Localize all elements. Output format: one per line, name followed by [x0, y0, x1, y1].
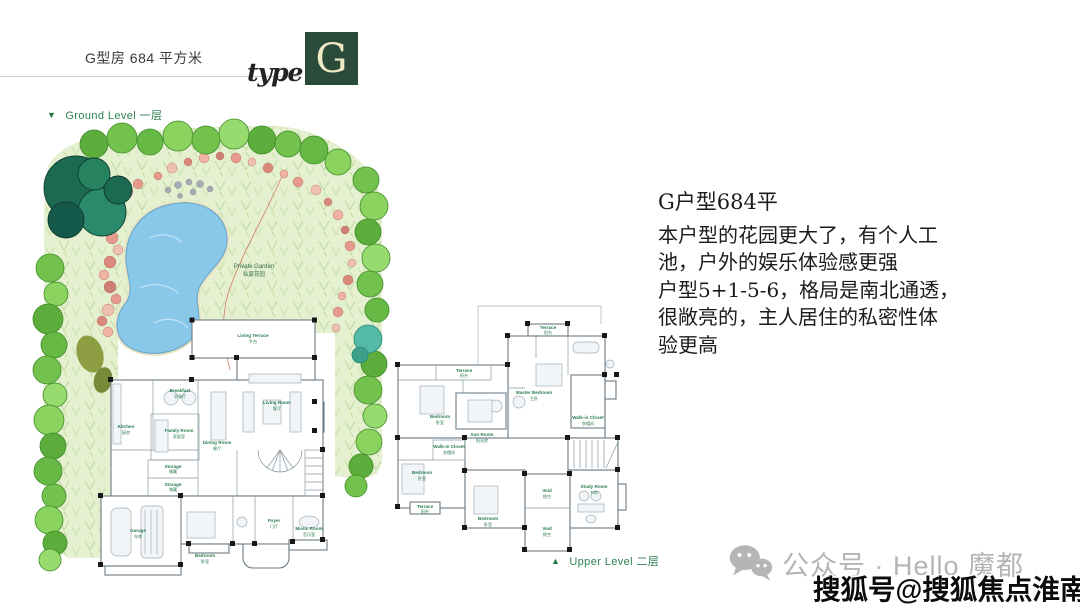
room-label: Bedroom: [195, 553, 215, 558]
svg-text:卧室: 卧室: [436, 419, 444, 425]
svg-text:家庭室: 家庭室: [173, 433, 185, 439]
page-title: G型房 684 平方米: [85, 48, 203, 68]
watermark-text: 搜狐号@搜狐焦点淮南站: [813, 567, 1080, 607]
svg-text:阳光房: 阳光房: [476, 437, 488, 443]
svg-text:挑空: 挑空: [543, 493, 551, 499]
room-label: Bedroom: [430, 414, 450, 419]
svg-text:阳台: 阳台: [421, 508, 429, 514]
room-label: Walk-in Closet: [433, 444, 465, 449]
description-line: 验更高: [658, 332, 1062, 359]
svg-text:书房: 书房: [590, 489, 598, 495]
svg-text:主卧: 主卧: [530, 395, 538, 401]
svg-text:储藏: 储藏: [169, 486, 177, 492]
description-block: G户型684平 本户型的花园更大了，有个人工 池，户外的娱乐体验感更强 户型5+…: [658, 186, 1062, 359]
room-label: Master Bedroom: [516, 390, 552, 395]
svg-text:门厅: 门厅: [270, 523, 278, 529]
room-label: Sun Room: [471, 432, 494, 437]
room-label: Study Room: [580, 484, 607, 489]
description-line: 很敞亮的，主人居住的私密性体: [658, 304, 1062, 331]
room-label: Bedroom: [412, 470, 432, 475]
room-label: Living Terrace: [237, 333, 269, 338]
room-label: Void: [542, 526, 552, 531]
description-line: 池，户外的娱乐体验感更强: [658, 249, 1062, 276]
upper-level-text: Upper Level 二层: [569, 553, 659, 569]
description-title: G户型684平: [658, 186, 1062, 216]
svg-text:卧室: 卧室: [484, 521, 492, 527]
wechat-icon: [728, 543, 774, 583]
type-word: type: [247, 58, 302, 87]
type-g-logo: G: [305, 32, 358, 85]
svg-text:客厅: 客厅: [273, 405, 281, 411]
svg-text:早餐厅: 早餐厅: [174, 393, 186, 399]
floor-plan-ground: Living Terrace 平台 Breakfast 早餐厅 Kitchen …: [93, 310, 351, 578]
upper-level-label: ▲ Upper Level 二层: [551, 553, 659, 569]
room-label: Walk-in Closet: [572, 415, 604, 420]
svg-text:卧室: 卧室: [201, 558, 209, 564]
svg-text:音乐室: 音乐室: [303, 531, 315, 537]
type-g-letter: G: [316, 39, 348, 79]
svg-text:阳台: 阳台: [460, 372, 468, 378]
svg-text:卧室: 卧室: [418, 475, 426, 481]
room-label: Breakfast: [170, 388, 191, 393]
svg-text:阳台: 阳台: [544, 329, 552, 335]
up-triangle-icon: ▲: [551, 557, 560, 566]
svg-text:挑空: 挑空: [543, 531, 551, 537]
svg-text:餐厅: 餐厅: [213, 445, 221, 451]
svg-text:车库: 车库: [134, 533, 142, 539]
room-label: Void: [542, 488, 552, 493]
room-label: Foyer: [268, 518, 281, 523]
description-line: 户型5+1-5-6，格局是南北通透，: [658, 277, 1062, 304]
description-line: 本户型的花园更大了，有个人工: [658, 222, 1062, 249]
room-label: Living Room: [263, 400, 291, 405]
garden-label-en: Private Garden: [234, 264, 274, 270]
svg-text:平台: 平台: [249, 338, 257, 344]
svg-text:厨房: 厨房: [122, 429, 130, 435]
garden-label-zh: 私家花园: [243, 270, 266, 278]
svg-text:衣帽间: 衣帽间: [443, 449, 455, 455]
room-label: Bedroom: [478, 516, 498, 521]
room-label: Family Room: [165, 428, 194, 433]
svg-text:衣帽间: 衣帽间: [582, 420, 594, 426]
page: G型房 684 平方米 type G ▼ Ground Level 一层: [0, 0, 1080, 608]
room-label: Kitchen: [118, 424, 135, 429]
room-label: Dining Room: [203, 440, 232, 445]
room-label: Music Room: [295, 526, 322, 531]
svg-text:储藏: 储藏: [169, 468, 177, 474]
room-label: Garage: [130, 528, 146, 533]
floor-plan-upper: Terrace 阳台 Master Bedroom 主卧 Terrace 阳台 …: [388, 298, 646, 560]
